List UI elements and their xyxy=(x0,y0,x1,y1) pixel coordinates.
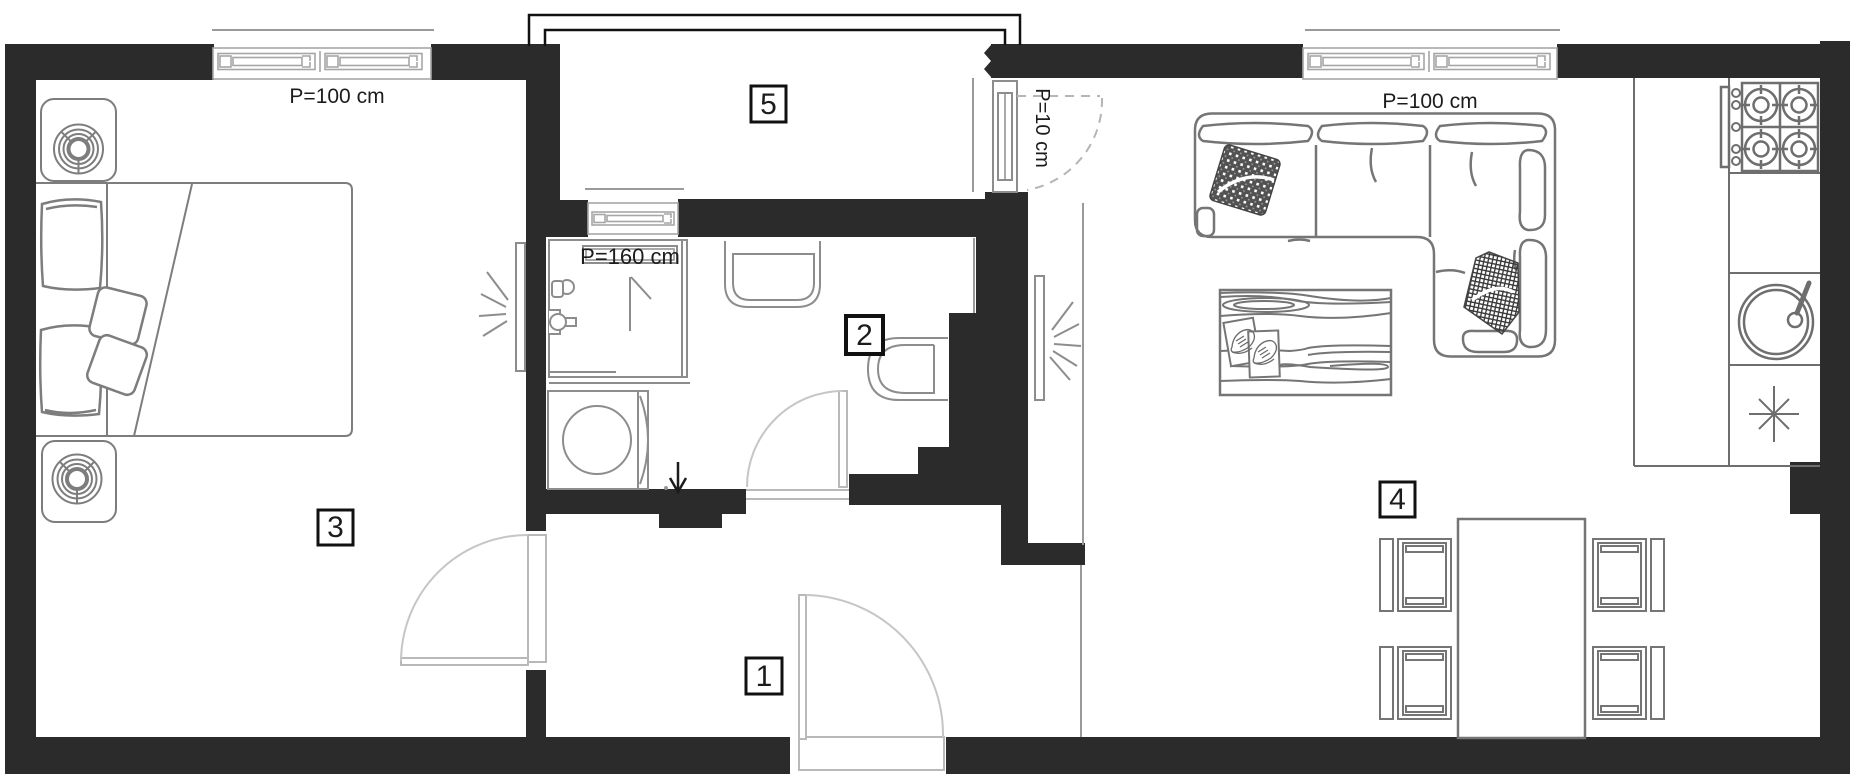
svg-text:P=10 cm: P=10 cm xyxy=(1031,88,1053,167)
svg-text:5: 5 xyxy=(760,88,777,121)
svg-text:4: 4 xyxy=(1389,483,1406,516)
svg-text:P=100 cm: P=100 cm xyxy=(289,85,384,108)
svg-text:3: 3 xyxy=(327,511,344,544)
svg-text:P=160 cm: P=160 cm xyxy=(580,244,680,269)
svg-text:2: 2 xyxy=(856,319,873,352)
svg-text:1: 1 xyxy=(756,660,773,693)
svg-text:P=100 cm: P=100 cm xyxy=(1382,90,1477,113)
